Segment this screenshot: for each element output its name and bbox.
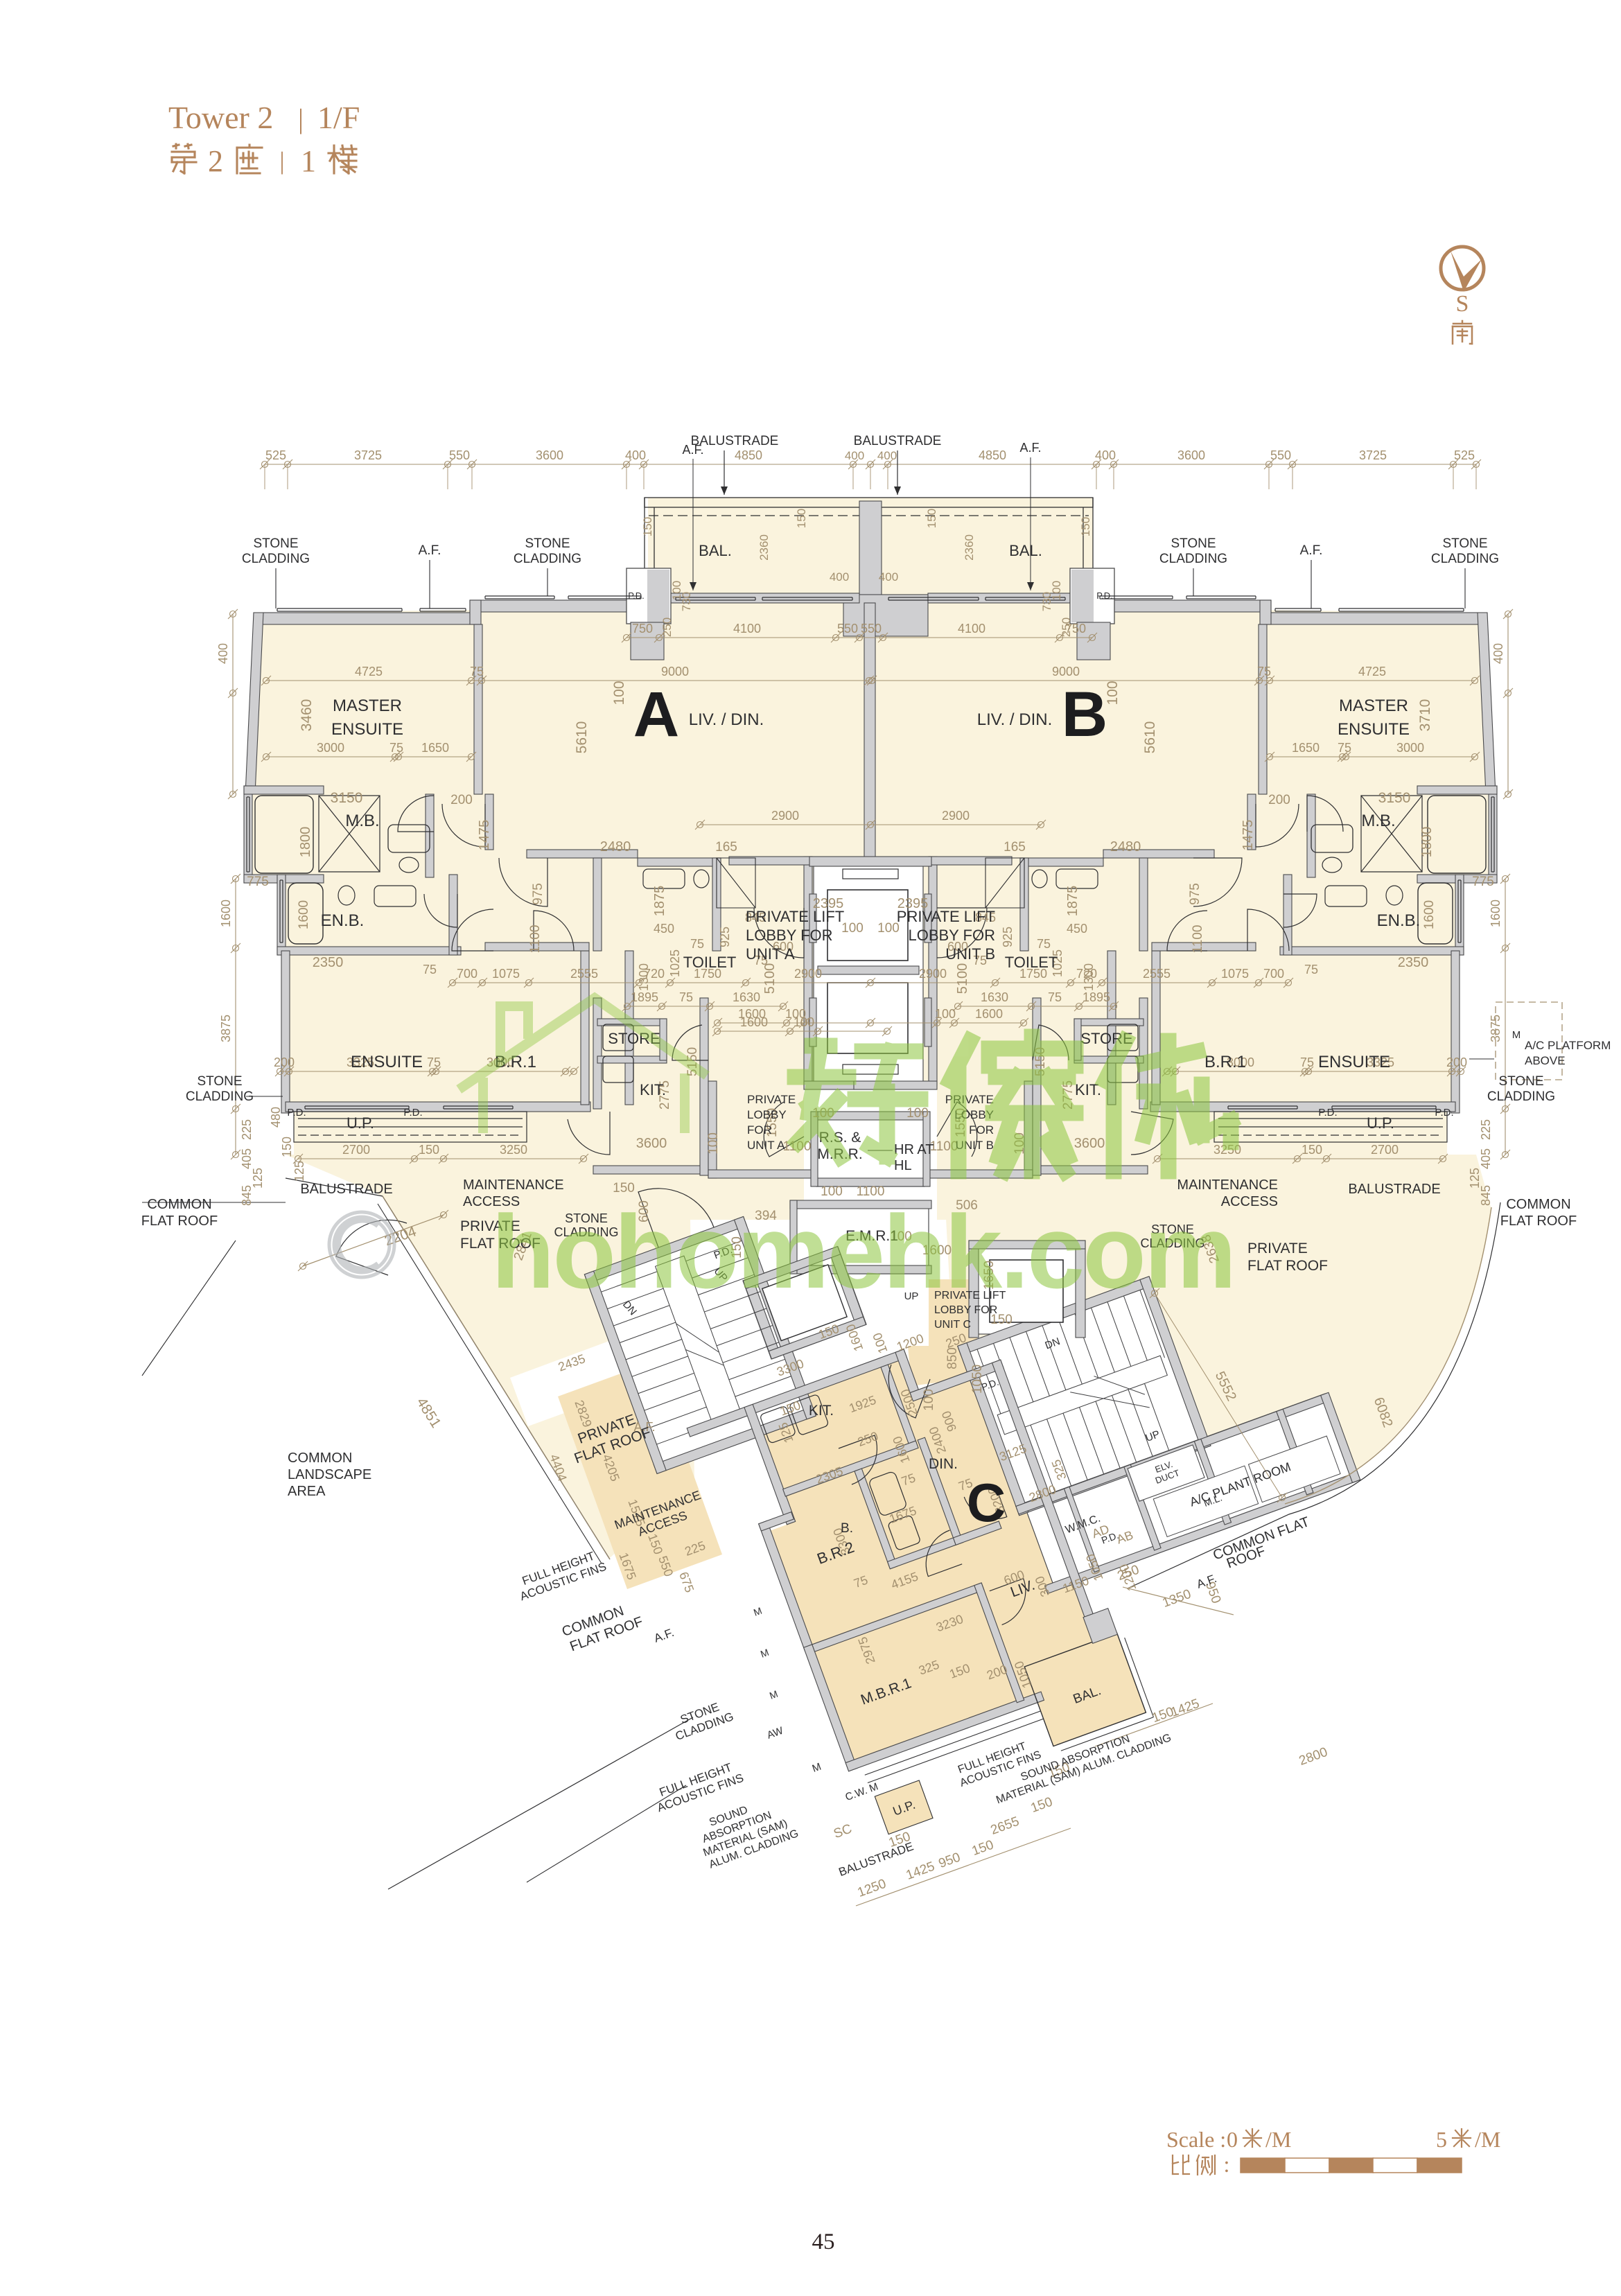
svg-text:A.F.: A.F. — [682, 443, 703, 457]
svg-text:165: 165 — [1004, 840, 1026, 855]
svg-text:3600: 3600 — [1177, 448, 1205, 462]
svg-text:P.D.: P.D. — [287, 1107, 306, 1119]
svg-text:DIN.: DIN. — [929, 1456, 958, 1472]
svg-text:COMMON: COMMON — [288, 1451, 352, 1466]
svg-text:75: 75 — [1300, 1055, 1314, 1069]
svg-text:5: 5 — [1436, 2127, 1447, 2152]
svg-text:2555: 2555 — [1143, 967, 1171, 981]
svg-text:Tower 2: Tower 2 — [168, 100, 273, 135]
svg-text:75: 75 — [470, 665, 484, 678]
svg-text:1075: 1075 — [492, 967, 520, 981]
svg-text:STONE: STONE — [525, 536, 570, 551]
svg-text:100: 100 — [906, 1106, 929, 1121]
svg-text:75: 75 — [389, 741, 403, 755]
svg-text:UNIT B: UNIT B — [945, 945, 995, 963]
svg-text:975: 975 — [531, 883, 545, 905]
svg-text:3725: 3725 — [1359, 448, 1387, 462]
svg-text:U.P.: U.P. — [347, 1114, 374, 1132]
svg-text:4100: 4100 — [958, 622, 985, 636]
svg-text:2360: 2360 — [757, 534, 771, 561]
svg-text:2360: 2360 — [963, 534, 976, 561]
svg-text:BALUSTRADE: BALUSTRADE — [300, 1182, 392, 1197]
svg-text:1475: 1475 — [1241, 820, 1256, 851]
svg-text:M.B.: M.B. — [345, 812, 379, 830]
svg-text:MASTER: MASTER — [1339, 696, 1408, 715]
svg-text:150: 150 — [419, 1143, 439, 1157]
svg-text:LOBBY: LOBBY — [747, 1108, 787, 1121]
svg-text:2: 2 — [208, 144, 223, 178]
svg-text:165: 165 — [715, 840, 737, 855]
svg-text:FOR: FOR — [747, 1123, 772, 1137]
svg-text:525: 525 — [1454, 448, 1475, 462]
svg-text:2900: 2900 — [771, 809, 799, 823]
svg-text:C: C — [967, 1472, 1006, 1533]
svg-text:1600: 1600 — [975, 1007, 1003, 1021]
svg-text:LIV. / DIN.: LIV. / DIN. — [977, 710, 1053, 729]
svg-text:KIT.: KIT. — [640, 1081, 666, 1098]
svg-text:1630: 1630 — [733, 990, 760, 1004]
svg-text:3875: 3875 — [219, 1015, 233, 1042]
svg-text:MAINTENANCE: MAINTENANCE — [463, 1177, 564, 1193]
svg-text:LIV. / DIN.: LIV. / DIN. — [689, 710, 764, 729]
svg-text:ENSUITE: ENSUITE — [1338, 720, 1410, 739]
svg-text:9000: 9000 — [661, 665, 689, 678]
svg-text:UNIT A: UNIT A — [747, 1139, 785, 1152]
svg-text:FLAT ROOF: FLAT ROOF — [1500, 1213, 1577, 1229]
svg-text:0: 0 — [1227, 2127, 1238, 2152]
svg-text:A.F.: A.F. — [1300, 543, 1323, 558]
svg-text:2900: 2900 — [794, 967, 822, 981]
svg-text:A/C PLATFORM: A/C PLATFORM — [1525, 1039, 1611, 1052]
svg-text:PRIVATE LIFT: PRIVATE LIFT — [746, 908, 844, 925]
svg-text:1800: 1800 — [298, 827, 313, 858]
svg-text:FLAT ROOF: FLAT ROOF — [141, 1213, 218, 1229]
svg-text:P.D.: P.D. — [1435, 1107, 1453, 1119]
svg-text:CLADDING: CLADDING — [242, 552, 310, 566]
svg-text:BALUSTRADE: BALUSTRADE — [854, 434, 942, 448]
svg-text:U.P.: U.P. — [1367, 1114, 1394, 1132]
svg-text:1600: 1600 — [1422, 900, 1437, 929]
svg-text:1630: 1630 — [981, 990, 1008, 1004]
svg-text:UNIT A: UNIT A — [746, 945, 795, 963]
svg-text:2480: 2480 — [1110, 839, 1141, 855]
svg-text:75: 75 — [1338, 741, 1351, 755]
svg-text:2700: 2700 — [1371, 1143, 1399, 1157]
svg-text:P.D.: P.D. — [403, 1107, 422, 1119]
svg-text:1300: 1300 — [1082, 963, 1096, 991]
svg-text:3000: 3000 — [317, 741, 344, 755]
svg-text:STONE: STONE — [253, 536, 298, 551]
svg-text:4850: 4850 — [735, 448, 762, 462]
svg-text:400: 400 — [1095, 448, 1116, 462]
svg-text:4100: 4100 — [733, 622, 761, 636]
svg-text:100: 100 — [706, 1132, 721, 1155]
svg-text:A.F.: A.F. — [419, 543, 441, 558]
svg-text:S: S — [1456, 291, 1469, 317]
svg-text:1/F: 1/F — [317, 100, 360, 135]
svg-text:1100: 1100 — [528, 925, 543, 954]
svg-text:480: 480 — [269, 1107, 283, 1128]
svg-text:150: 150 — [641, 517, 654, 536]
svg-text:75: 75 — [1304, 963, 1318, 976]
svg-text:3460: 3460 — [299, 699, 315, 732]
svg-text:CLADDING: CLADDING — [1487, 1089, 1555, 1104]
svg-text:400: 400 — [1491, 643, 1505, 664]
svg-text:STONE: STONE — [197, 1074, 242, 1089]
svg-text:100: 100 — [611, 681, 627, 705]
svg-text:/M: /M — [1265, 2127, 1291, 2152]
svg-text:400: 400 — [216, 643, 230, 664]
svg-text:1: 1 — [301, 144, 316, 178]
svg-text:1800: 1800 — [1419, 827, 1435, 858]
svg-text:HR AT: HR AT — [894, 1142, 934, 1157]
svg-text:845: 845 — [1479, 1185, 1493, 1206]
svg-text:150: 150 — [795, 509, 808, 528]
svg-text:1600: 1600 — [219, 900, 233, 927]
svg-text:HL: HL — [894, 1158, 912, 1173]
svg-text:2480: 2480 — [600, 839, 631, 855]
svg-text:5610: 5610 — [574, 721, 590, 754]
svg-text:1300: 1300 — [637, 963, 651, 991]
svg-text:TOILET: TOILET — [683, 954, 737, 971]
svg-text:1895: 1895 — [1083, 990, 1110, 1004]
svg-text:9000: 9000 — [1052, 665, 1080, 678]
svg-text:150: 150 — [1079, 517, 1092, 536]
svg-text:150: 150 — [280, 1137, 294, 1157]
svg-text:1075: 1075 — [1221, 967, 1249, 981]
svg-text:550: 550 — [449, 448, 470, 462]
svg-text:CLADDING: CLADDING — [1159, 552, 1227, 566]
svg-text:MASTER: MASTER — [333, 696, 402, 715]
svg-text:3725: 3725 — [354, 448, 382, 462]
svg-text:3000: 3000 — [1396, 741, 1424, 755]
svg-text:450: 450 — [1067, 922, 1087, 936]
svg-text:75: 75 — [1037, 937, 1051, 951]
svg-text:LOBBY FOR: LOBBY FOR — [908, 927, 995, 944]
svg-text:400: 400 — [830, 570, 849, 584]
svg-text:AREA: AREA — [288, 1484, 326, 1499]
svg-text:3150: 3150 — [331, 790, 363, 806]
svg-text:EN.B.: EN.B. — [321, 911, 365, 930]
svg-text:hohomehk.com: hohomehk.com — [491, 1193, 1234, 1310]
svg-text:925: 925 — [718, 927, 732, 947]
svg-text:P.D.: P.D. — [628, 590, 645, 601]
svg-text:CLADDING: CLADDING — [514, 552, 581, 566]
svg-text:75: 75 — [423, 963, 437, 976]
svg-text:PRIVATE LIFT: PRIVATE LIFT — [897, 908, 995, 925]
svg-text:3250: 3250 — [500, 1143, 527, 1157]
svg-text:75: 75 — [1048, 990, 1062, 1004]
svg-text:450: 450 — [654, 922, 674, 936]
svg-text:BAL.: BAL. — [699, 542, 732, 559]
svg-text:975: 975 — [1188, 883, 1202, 905]
svg-text:LOBBY FOR: LOBBY FOR — [746, 927, 833, 944]
svg-text:150: 150 — [925, 509, 938, 528]
svg-text:100: 100 — [670, 581, 683, 600]
svg-text:COMMON: COMMON — [1506, 1197, 1570, 1212]
svg-text:B.R.1: B.R.1 — [1204, 1053, 1246, 1071]
svg-text:EN.B.: EN.B. — [1377, 911, 1421, 930]
svg-text:FLAT ROOF: FLAT ROOF — [1247, 1258, 1328, 1274]
svg-text:550: 550 — [1270, 448, 1291, 462]
svg-text:5100: 5100 — [955, 963, 970, 994]
svg-text:1475: 1475 — [477, 820, 492, 851]
svg-text:KIT.: KIT. — [809, 1403, 834, 1419]
svg-text:BAL.: BAL. — [1009, 542, 1042, 559]
svg-text:FOR: FOR — [969, 1123, 994, 1137]
svg-text:2700: 2700 — [342, 1143, 370, 1157]
svg-text:200: 200 — [450, 793, 473, 807]
svg-text:700: 700 — [1263, 967, 1284, 981]
svg-text:100: 100 — [841, 921, 864, 936]
svg-text:M.B.: M.B. — [1361, 812, 1395, 830]
svg-text:775: 775 — [1472, 875, 1494, 889]
svg-text:LANDSCAPE: LANDSCAPE — [288, 1467, 371, 1482]
svg-text:4725: 4725 — [355, 665, 383, 678]
svg-text:Scale :: Scale : — [1166, 2127, 1226, 2152]
svg-text:750: 750 — [632, 622, 653, 636]
svg-text:CLADDING: CLADDING — [186, 1089, 254, 1104]
svg-text:ENSUITE: ENSUITE — [351, 1053, 423, 1071]
svg-text:1875: 1875 — [652, 886, 667, 917]
svg-text:1600: 1600 — [1489, 900, 1502, 927]
svg-text:400: 400 — [877, 449, 897, 462]
svg-text:1100: 1100 — [1191, 925, 1205, 954]
svg-text:3600: 3600 — [1074, 1136, 1105, 1151]
svg-text:|: | — [279, 147, 284, 175]
svg-text:B.: B. — [841, 1521, 853, 1536]
svg-text:75: 75 — [679, 990, 693, 1004]
svg-text:COMMON: COMMON — [147, 1197, 211, 1212]
svg-text:/M: /M — [1475, 2127, 1500, 2152]
svg-text:200: 200 — [1268, 793, 1290, 807]
svg-text:100: 100 — [785, 1007, 806, 1021]
svg-text:3150: 3150 — [1378, 790, 1411, 806]
svg-text:1875: 1875 — [1065, 886, 1080, 917]
svg-text:ENSUITE: ENSUITE — [1318, 1053, 1390, 1071]
svg-text:UNIT C: UNIT C — [934, 1319, 971, 1331]
svg-text:2350: 2350 — [1398, 955, 1429, 970]
svg-text:PRIVATE: PRIVATE — [1247, 1241, 1308, 1256]
svg-text:225: 225 — [1479, 1119, 1493, 1140]
svg-text:STONE: STONE — [1171, 536, 1216, 551]
svg-text:BALUSTRADE: BALUSTRADE — [1348, 1182, 1440, 1197]
svg-text:CLADDING: CLADDING — [1431, 552, 1499, 566]
svg-text:75: 75 — [690, 937, 704, 951]
svg-text:225: 225 — [240, 1119, 254, 1140]
svg-text:1650: 1650 — [421, 741, 449, 755]
svg-text:850: 850 — [945, 1347, 960, 1369]
svg-text:P.D.: P.D. — [1096, 590, 1113, 601]
svg-text:405: 405 — [1479, 1148, 1493, 1169]
svg-text:525: 525 — [265, 448, 286, 462]
svg-text:1895: 1895 — [631, 990, 658, 1004]
svg-text:845: 845 — [240, 1185, 254, 1206]
svg-text:3600: 3600 — [636, 1136, 667, 1151]
svg-text:2555: 2555 — [570, 967, 598, 981]
svg-text:5100: 5100 — [762, 963, 778, 994]
svg-text:1025: 1025 — [668, 949, 682, 977]
svg-text:400: 400 — [879, 570, 898, 584]
svg-text:405: 405 — [240, 1148, 254, 1169]
svg-text:1600: 1600 — [738, 1007, 766, 1021]
svg-text:400: 400 — [845, 449, 864, 462]
svg-text:75: 75 — [1257, 665, 1271, 678]
svg-text:100: 100 — [1050, 581, 1063, 600]
svg-text:TOILET: TOILET — [1005, 954, 1058, 971]
svg-text:ABOVE: ABOVE — [1525, 1054, 1566, 1067]
svg-text:550: 550 — [837, 622, 858, 636]
svg-text:STONE: STONE — [1442, 536, 1487, 551]
svg-text:ENSUITE: ENSUITE — [331, 720, 403, 739]
svg-text:A.F.: A.F. — [1019, 441, 1041, 455]
svg-text:2900: 2900 — [942, 809, 970, 823]
svg-text:750: 750 — [1065, 622, 1086, 636]
svg-text:4725: 4725 — [1358, 665, 1386, 678]
svg-text:1600: 1600 — [297, 900, 311, 929]
svg-text:2900: 2900 — [919, 967, 947, 981]
svg-text:45: 45 — [812, 2229, 835, 2254]
svg-text:STONE: STONE — [1498, 1074, 1543, 1089]
svg-text:PRIVATE: PRIVATE — [747, 1093, 796, 1106]
svg-text:100: 100 — [922, 1389, 936, 1411]
svg-text:200: 200 — [1446, 1055, 1467, 1069]
svg-text:400: 400 — [625, 448, 646, 462]
svg-text:P.D.: P.D. — [1318, 1107, 1337, 1119]
svg-text:550: 550 — [861, 622, 882, 636]
svg-text:700: 700 — [457, 967, 477, 981]
svg-text:200: 200 — [274, 1055, 295, 1069]
svg-text:925: 925 — [1001, 927, 1015, 947]
svg-text:M: M — [1512, 1029, 1521, 1041]
svg-text:3600: 3600 — [536, 448, 563, 462]
svg-text:775: 775 — [247, 875, 269, 889]
svg-text:5610: 5610 — [1142, 721, 1158, 754]
svg-text:|: | — [298, 103, 304, 134]
svg-text::: : — [1224, 2152, 1230, 2177]
svg-text:A: A — [633, 679, 679, 750]
svg-text:2350: 2350 — [313, 955, 344, 970]
svg-text:4850: 4850 — [979, 448, 1006, 462]
svg-text:MAINTENANCE: MAINTENANCE — [1177, 1177, 1278, 1193]
svg-text:100: 100 — [935, 1007, 956, 1021]
svg-text:3875: 3875 — [1489, 1015, 1502, 1042]
svg-text:B: B — [1062, 679, 1107, 750]
svg-text:75: 75 — [427, 1055, 441, 1069]
svg-text:125: 125 — [292, 1161, 306, 1182]
svg-text:1650: 1650 — [1292, 741, 1320, 755]
svg-text:3710: 3710 — [1417, 699, 1433, 732]
svg-text:BALUSTRADE: BALUSTRADE — [691, 434, 779, 448]
svg-text:150: 150 — [1302, 1143, 1322, 1157]
